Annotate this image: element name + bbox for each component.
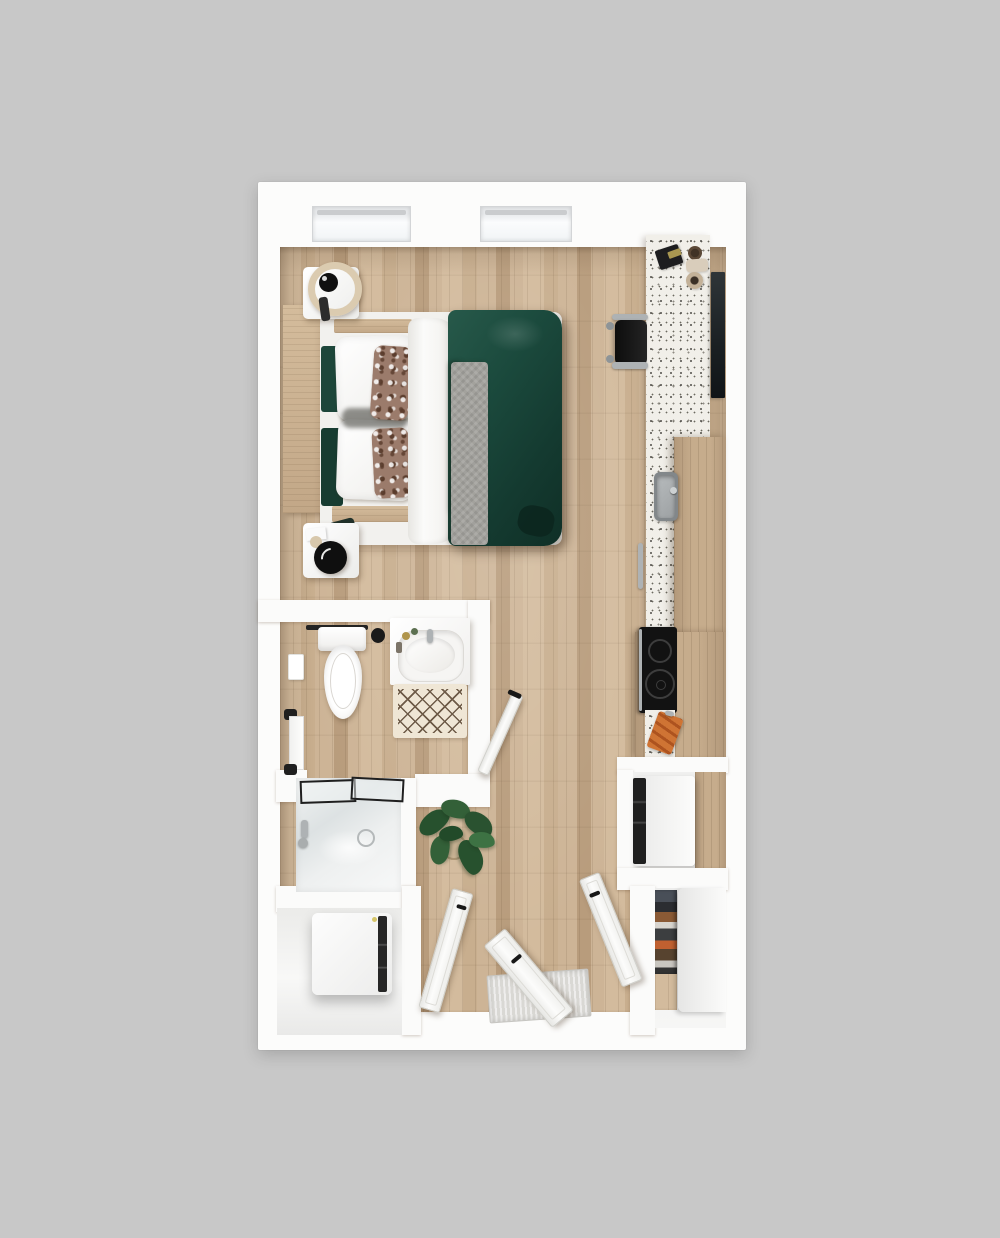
floral-accent-pillow-bottom [371, 427, 412, 499]
kitchen-sink [654, 472, 678, 521]
hanging-towel [289, 716, 304, 770]
cooktop-rail [639, 629, 642, 711]
soap-dispenser [396, 642, 402, 653]
office-chair-seat [615, 320, 647, 365]
window-right [480, 206, 572, 242]
shower-glass-panel-left [300, 779, 357, 804]
vanity-faucet [427, 629, 433, 643]
sphere-lamp-shade [319, 273, 338, 292]
soap-dish-gold [402, 632, 410, 640]
burner-center [656, 680, 666, 690]
toilet-paper-holder [288, 654, 304, 680]
black-spiral-lamp [314, 541, 347, 574]
potted-plant [415, 800, 495, 885]
nook-wall-top [617, 757, 728, 773]
floral-accent-pillow-top [369, 345, 412, 421]
tall-kitchen-cabinet [674, 437, 726, 633]
closet-shoe-shelves [655, 890, 677, 974]
laundry-wall-right [402, 886, 421, 1035]
duvet-highlight [486, 316, 544, 352]
washer-dryer-unit [312, 913, 392, 995]
duvet-drape-fold [515, 503, 556, 540]
towel-rail-bracket-bottom [284, 764, 297, 775]
round-vase [686, 272, 703, 289]
window-frame-bar [317, 210, 406, 215]
gray-knit-throw [451, 362, 488, 545]
shower-valve [301, 820, 308, 838]
sink-faucet [670, 487, 677, 494]
nook-wood-shelf [695, 772, 726, 872]
bath-mat-lattice [398, 689, 462, 733]
bath-mat [393, 684, 467, 738]
chair-caster-top [606, 322, 614, 330]
dishwasher-handle [638, 543, 643, 589]
window-frame-bar [485, 210, 567, 215]
shower-glass-panel-right [350, 777, 404, 803]
window-left [312, 206, 411, 242]
closet-floor [655, 974, 677, 1010]
bed-rail-top [334, 319, 412, 333]
shower-head-fixture [298, 838, 308, 848]
bed-headboard [283, 305, 320, 513]
cream-trinket-box [686, 258, 709, 273]
oven-appliance [633, 776, 695, 866]
wall-tv [711, 272, 725, 398]
closet-white-panel [678, 888, 726, 1012]
chair-caster-bottom [606, 355, 614, 363]
chair-arm-bottom [612, 362, 648, 369]
shower-drain [357, 829, 375, 847]
lamp-glint [322, 276, 327, 281]
toilet-brush-jar [371, 628, 385, 643]
washer-indicator-light [372, 917, 377, 922]
sink-basin [657, 475, 675, 518]
cooktop [639, 627, 677, 713]
lamp-spiral [317, 544, 347, 574]
oven-door-front [633, 778, 646, 864]
washer-door-seam [378, 916, 387, 992]
burner-large [645, 669, 675, 699]
toilet-seat-ring [330, 653, 356, 709]
burner-small [648, 639, 672, 663]
vanity-plant-sprig [411, 628, 418, 635]
floorplan-scene [0, 0, 1000, 1238]
